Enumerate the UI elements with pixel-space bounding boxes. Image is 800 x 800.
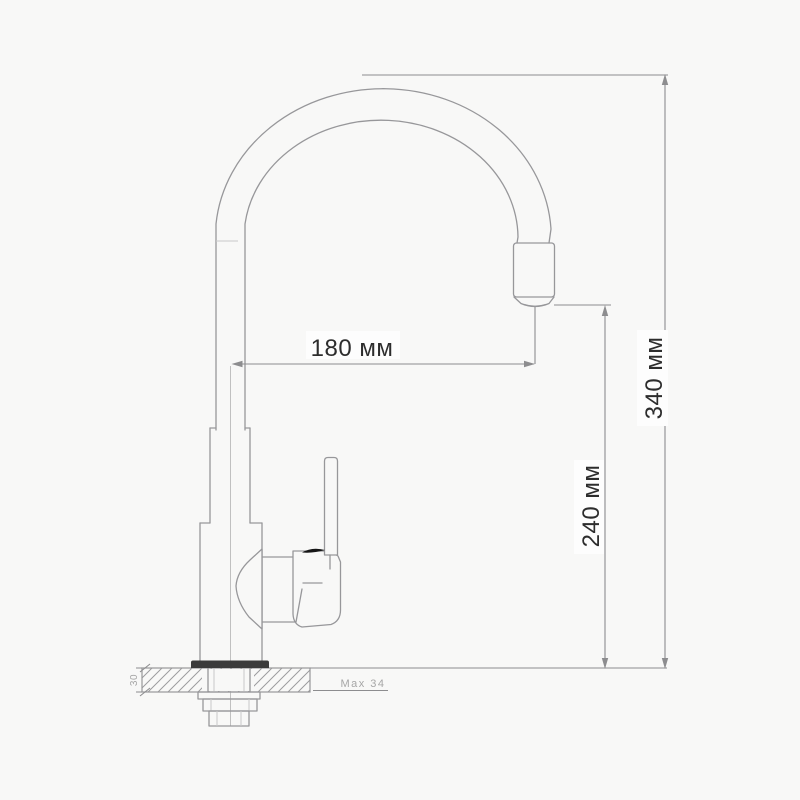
dimension-annotations: 340 мм 240 мм 180 мм Max 34 [129,74,668,696]
dimension-overall-height: 340 мм [637,74,668,669]
gooseneck-spout [216,89,551,430]
gooseneck-inner-contour [245,120,518,430]
drawing-canvas: 340 мм 240 мм 180 мм Max 34 [0,0,800,800]
aerator-tip [514,297,554,307]
dimension-label-max-thickness: Max 34 [340,678,385,690]
arrowhead-340-top [662,74,668,85]
dimension-max-mounting-thickness: Max 34 [313,678,388,691]
faucet-technical-drawing: 340 мм 240 мм 180 мм Max 34 [0,0,800,800]
aerator-nozzle [514,243,555,307]
dimension-label-deck-thickness: 30 [129,674,140,686]
arrowhead-180-right [524,361,535,367]
riser-column [200,428,262,661]
dimension-label-spout-reach: 180 мм [311,335,394,362]
shank-end [209,711,249,726]
handle-body [293,551,341,627]
mounting-hole [202,669,254,691]
arrowhead-340-bottom [662,658,668,669]
dimension-spout-height: 240 мм [574,305,608,669]
arrowhead-240-top [602,305,608,316]
arrowhead-180-left [232,361,243,367]
aerator-lip [524,305,546,307]
handle-hub [262,557,297,622]
faucet-outline [142,89,555,726]
lever-handle [236,458,341,630]
collar-sides [210,428,250,523]
dimension-spout-reach: 180 мм [232,331,536,367]
dimension-label-spout-height: 240 мм [578,465,605,548]
shank-end-facets [217,711,241,726]
nut-facets [211,699,249,711]
handle-lever-arm [325,458,338,556]
gooseneck-outer-contour [216,89,551,430]
arrowhead-240-bottom [602,658,608,669]
mounting-washer [198,692,260,699]
handle-cone-wedge [236,549,262,629]
countertop-mounting [142,661,310,727]
base-flange [191,661,269,669]
dimension-label-overall-height: 340 мм [641,337,668,420]
aerator-housing [514,243,555,297]
